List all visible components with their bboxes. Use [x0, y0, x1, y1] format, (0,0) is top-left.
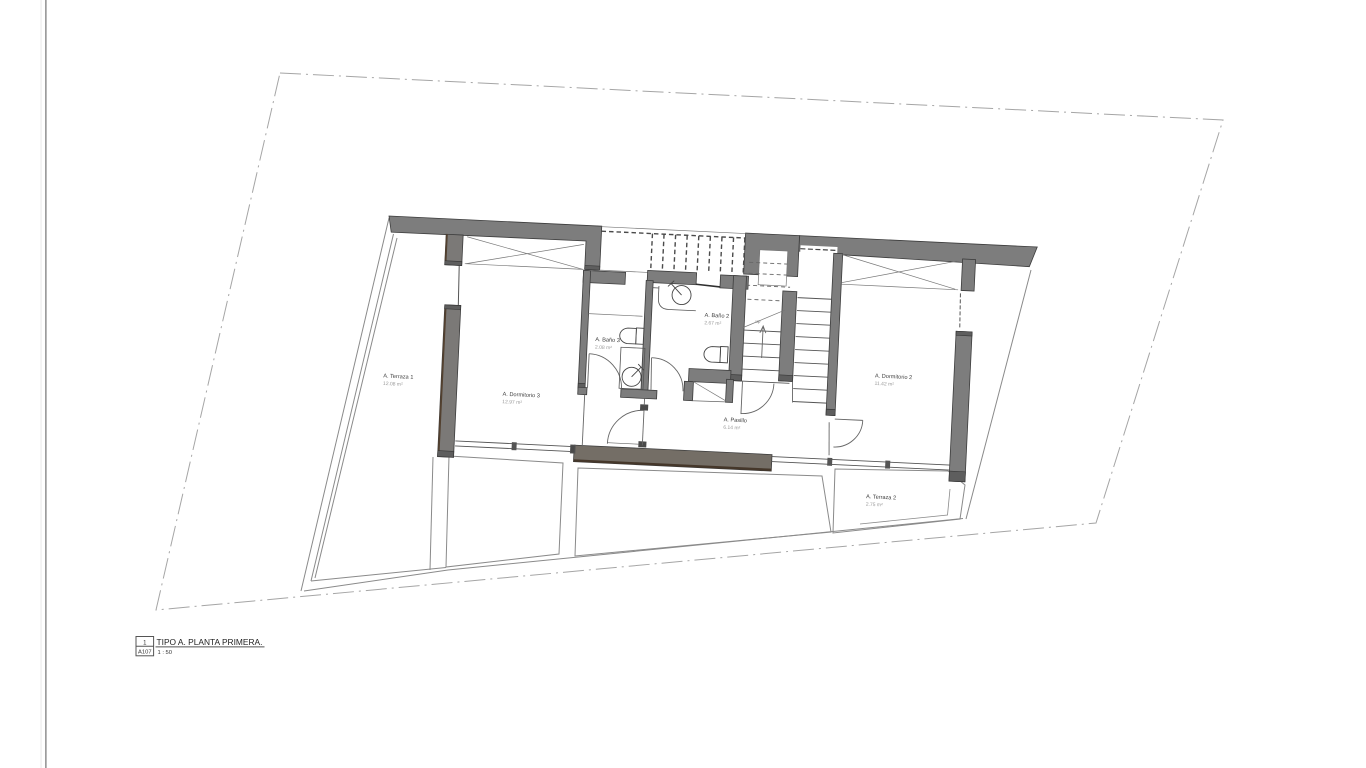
svg-text:11.42 m²: 11.42 m² [874, 381, 894, 388]
svg-text:2.08 m²: 2.08 m² [595, 344, 613, 351]
svg-text:6.14 m²: 6.14 m² [723, 425, 741, 432]
svg-text:A. Baño 3: A. Baño 3 [595, 337, 620, 344]
svg-text:2.75 m²: 2.75 m² [866, 502, 884, 509]
svg-text:2.67 m²: 2.67 m² [704, 320, 722, 327]
svg-text:TIPO A. PLANTA PRIMERA.: TIPO A. PLANTA PRIMERA. [157, 637, 263, 647]
svg-text:A107: A107 [138, 649, 152, 655]
svg-text:12.97 m²: 12.97 m² [502, 399, 522, 406]
svg-text:A. Pasillo: A. Pasillo [723, 417, 747, 424]
svg-text:1 : 50: 1 : 50 [158, 650, 173, 656]
svg-text:A. Baño 2: A. Baño 2 [704, 313, 729, 320]
svg-text:up: up [755, 319, 761, 324]
svg-text:12.08 m²: 12.08 m² [383, 381, 403, 388]
